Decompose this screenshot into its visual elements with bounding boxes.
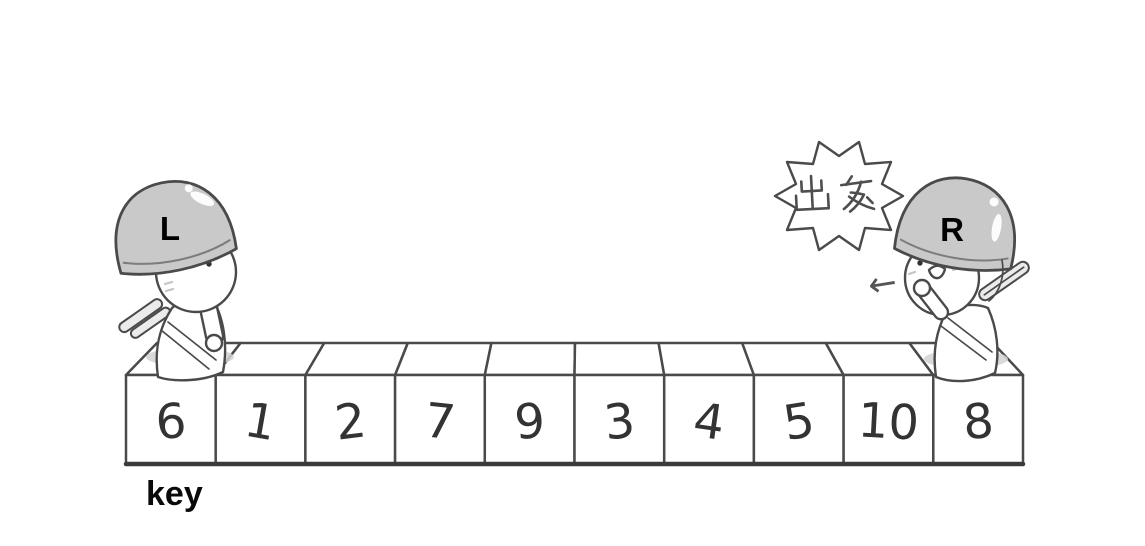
array-cell: 9 xyxy=(485,343,575,464)
illustration-stage: 出发 6 1 2 7 xyxy=(0,0,1145,546)
cell-top-face xyxy=(395,343,491,375)
character-hand xyxy=(914,280,930,296)
cell-top-face xyxy=(575,343,665,375)
array: 6 1 2 7 9 xyxy=(126,343,1023,464)
cell-number: 9 xyxy=(513,393,547,451)
pointer-left-label: L xyxy=(160,210,180,247)
array-cell: 3 xyxy=(575,343,665,464)
cell-top-face xyxy=(305,343,407,375)
array-cell: 7 xyxy=(395,343,491,464)
array-cell: 4 xyxy=(659,343,754,464)
key-label: key xyxy=(146,475,203,513)
left-arrow-glyph: ← xyxy=(865,262,899,306)
cell-number: 6 xyxy=(153,393,188,451)
array-cell: 2 xyxy=(305,343,407,464)
cell-number: 7 xyxy=(422,393,458,452)
cell-top-face xyxy=(485,343,575,375)
pointer-right-label: R xyxy=(940,211,964,248)
speech-bubble xyxy=(775,142,903,250)
cell-top-face xyxy=(659,343,754,375)
cell-number: 3 xyxy=(601,393,637,452)
pointer-left-character: L xyxy=(104,170,239,380)
array-cell: 5 xyxy=(742,343,843,464)
character-hand xyxy=(206,335,222,351)
mouth xyxy=(929,266,945,278)
burst-bubble-shape xyxy=(775,142,903,250)
illustration-svg: 6 1 2 7 9 xyxy=(0,0,1145,546)
cell-number: 8 xyxy=(961,393,996,451)
cell-number: 10 xyxy=(856,392,920,451)
